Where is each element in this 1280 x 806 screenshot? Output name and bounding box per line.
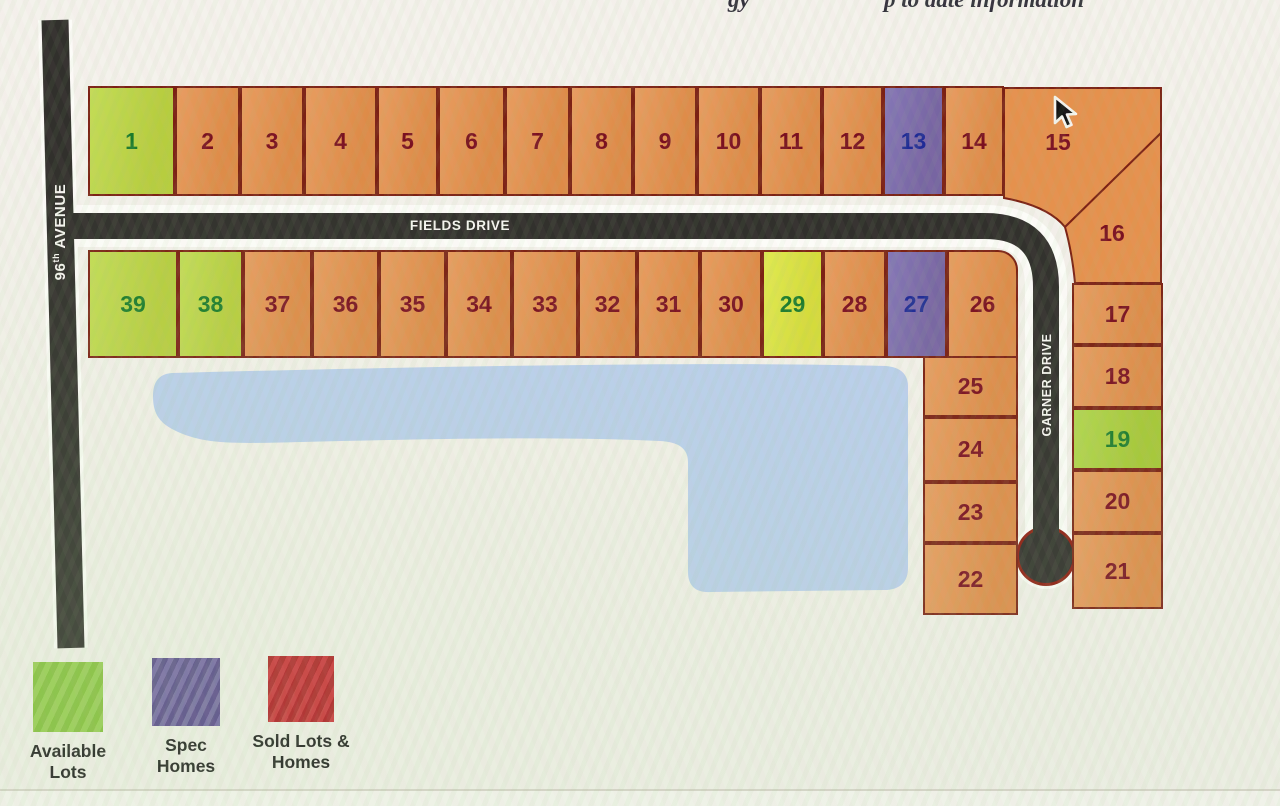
pond xyxy=(153,364,908,592)
lot-8: 8 xyxy=(570,86,633,196)
lot-1: 1 xyxy=(88,86,175,196)
lot-10: 10 xyxy=(697,86,760,196)
legend-available-line1: Available xyxy=(8,741,128,762)
lot-17: 17 xyxy=(1072,283,1163,345)
lot-5: 5 xyxy=(377,86,438,196)
lot-27: 27 xyxy=(886,250,947,358)
lot-11: 11 xyxy=(760,86,822,196)
top-note: gy p to date information xyxy=(0,0,1280,13)
avenue-label: 96th AVENUE xyxy=(51,152,69,312)
lot-2: 2 xyxy=(175,86,240,196)
top-note-fragment: gy xyxy=(728,0,750,13)
lot-6: 6 xyxy=(438,86,505,196)
legend-available-label: Available Lots xyxy=(8,741,128,782)
lot-map-photo: gy p to date information 1 2 3 4 5 6 7 8… xyxy=(0,0,1280,806)
lot-19: 19 xyxy=(1072,408,1163,470)
lot-30: 30 xyxy=(700,250,762,358)
legend-sold-swatch xyxy=(268,656,334,722)
mouse-cursor-icon xyxy=(1050,94,1080,134)
lot-12: 12 xyxy=(822,86,883,196)
cul-de-sac xyxy=(1019,529,1073,583)
lot-33: 33 xyxy=(512,250,578,358)
photo-bottom-edge xyxy=(0,789,1280,806)
lot-4: 4 xyxy=(304,86,377,196)
lot-34: 34 xyxy=(446,250,512,358)
lot-14: 14 xyxy=(944,86,1004,196)
legend-sold-line1: Sold Lots & xyxy=(235,731,367,752)
lot-25: 25 xyxy=(923,356,1018,417)
lot-20: 20 xyxy=(1072,470,1163,533)
legend-sold-line2: Homes xyxy=(235,752,367,773)
lot-29: 29 xyxy=(762,250,823,358)
legend-available-swatch xyxy=(33,662,103,732)
lot-26: 26 xyxy=(947,250,1018,358)
garner-drive-label: GARNER DRIVE xyxy=(1040,305,1054,465)
lot-16-label: 16 xyxy=(1082,219,1142,247)
avenue-road xyxy=(55,20,71,648)
legend-spec-label: Spec Homes xyxy=(131,735,241,776)
avenue-number: 96 xyxy=(52,263,69,281)
lot-35: 35 xyxy=(379,250,446,358)
lot-7: 7 xyxy=(505,86,570,196)
lot-21: 21 xyxy=(1072,533,1163,609)
legend-spec-line1: Spec xyxy=(131,735,241,756)
avenue-name: AVENUE xyxy=(52,184,69,253)
avenue-ordinal: th xyxy=(51,253,61,263)
legend-spec-line2: Homes xyxy=(131,756,241,777)
top-note-fragment: p to date information xyxy=(884,0,1084,13)
lot-37: 37 xyxy=(243,250,312,358)
lot-24: 24 xyxy=(923,417,1018,482)
lot-32: 32 xyxy=(578,250,637,358)
legend-sold-label: Sold Lots & Homes xyxy=(235,731,367,772)
lot-36: 36 xyxy=(312,250,379,358)
lot-9: 9 xyxy=(633,86,697,196)
lot-38: 38 xyxy=(178,250,243,358)
lot-18: 18 xyxy=(1072,345,1163,408)
legend-available-line2: Lots xyxy=(8,762,128,783)
lot-13: 13 xyxy=(883,86,944,196)
lot-28: 28 xyxy=(823,250,886,358)
lot-3: 3 xyxy=(240,86,304,196)
lot-39: 39 xyxy=(88,250,178,358)
lot-23: 23 xyxy=(923,482,1018,543)
fields-drive-label: FIELDS DRIVE xyxy=(400,218,520,233)
lot-22: 22 xyxy=(923,543,1018,615)
legend-spec-swatch xyxy=(152,658,220,726)
lot-31: 31 xyxy=(637,250,700,358)
